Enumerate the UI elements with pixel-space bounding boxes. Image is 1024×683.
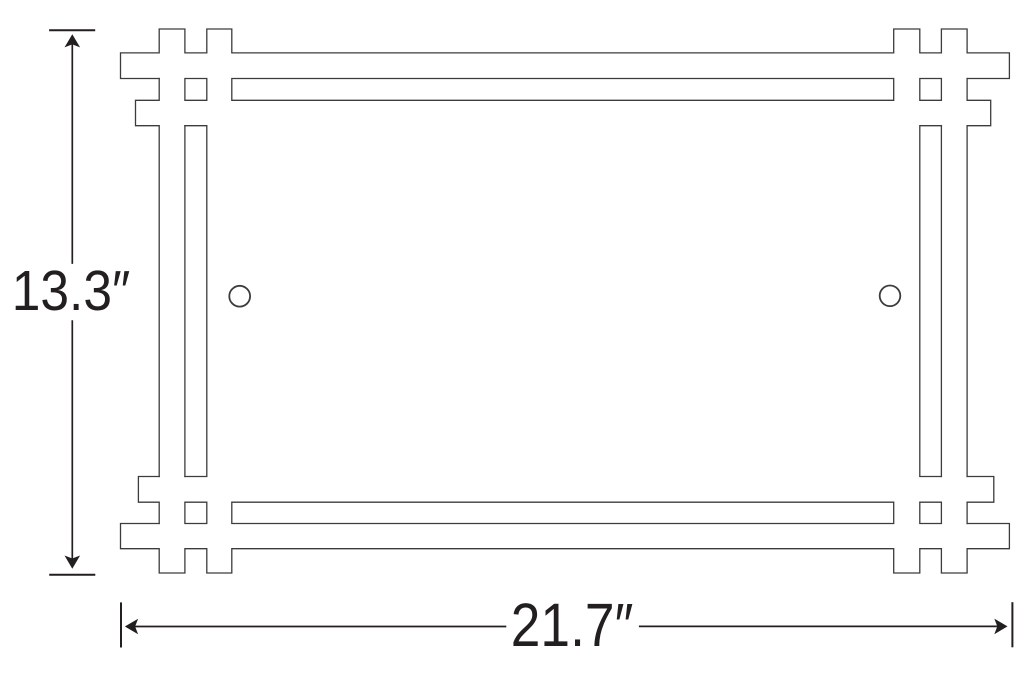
svg-text:13.3″: 13.3″ bbox=[12, 259, 131, 323]
svg-text:21.7″: 21.7″ bbox=[511, 591, 634, 659]
